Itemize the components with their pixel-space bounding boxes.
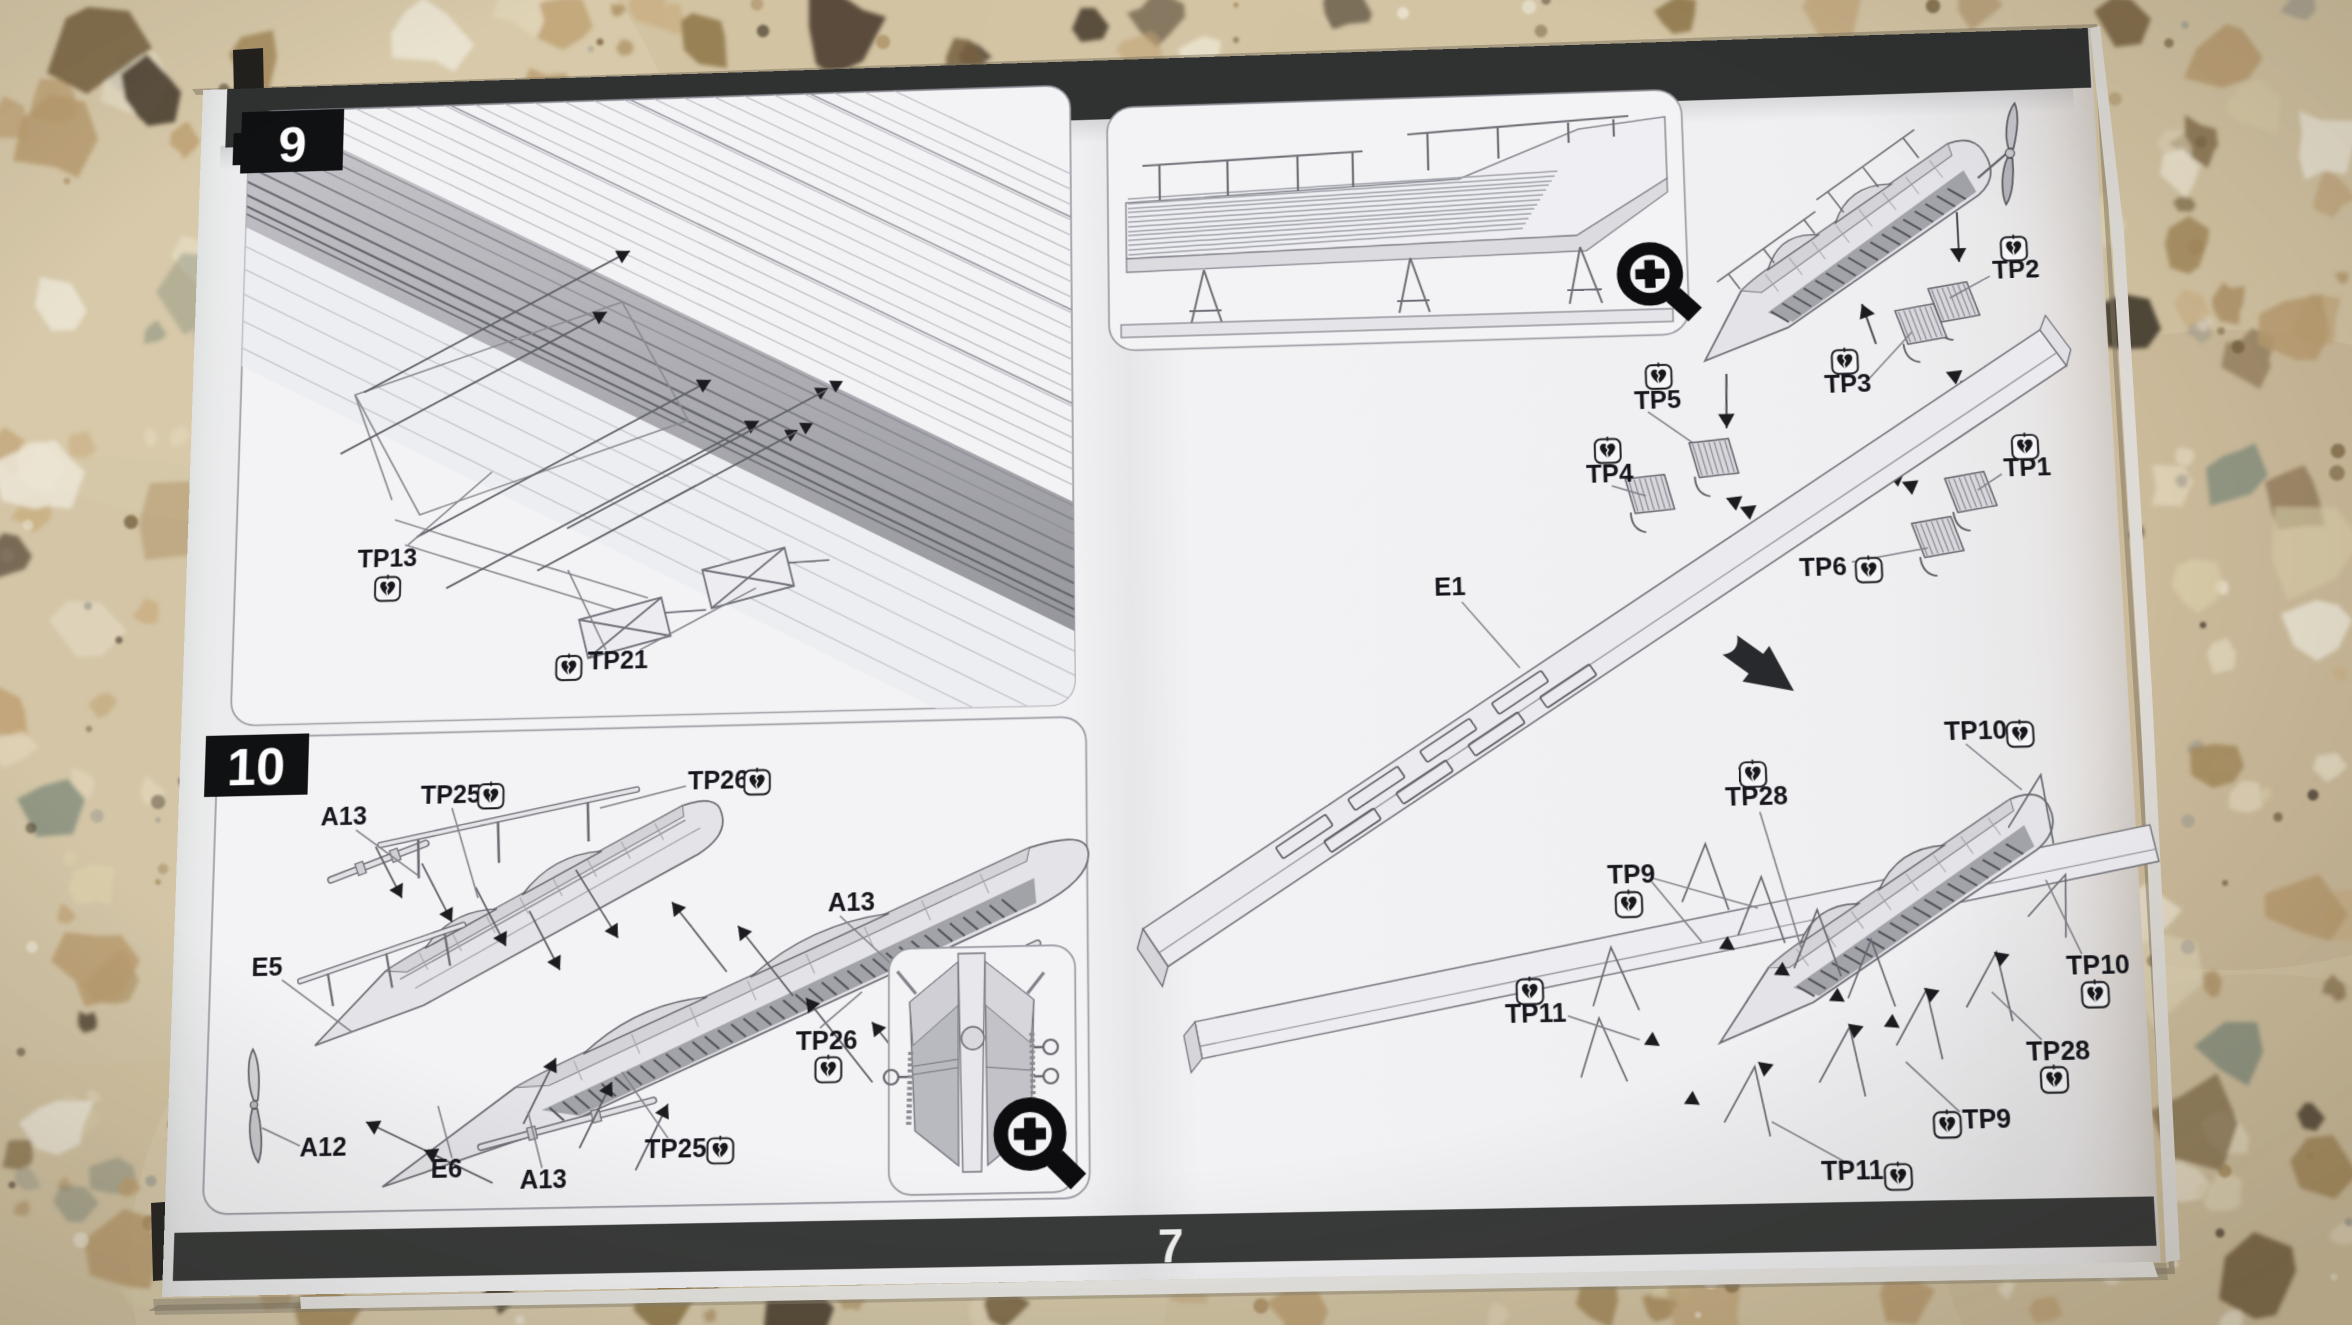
- svg-text:A12: A12: [299, 1132, 347, 1162]
- svg-text:TP4: TP4: [1586, 460, 1635, 489]
- svg-text:TP5: TP5: [1634, 386, 1682, 415]
- svg-text:E5: E5: [251, 953, 283, 983]
- svg-text:A13: A13: [519, 1164, 567, 1195]
- svg-text:TP25: TP25: [420, 780, 481, 810]
- svg-text:E6: E6: [430, 1155, 462, 1185]
- svg-text:TP25: TP25: [645, 1134, 707, 1165]
- svg-text:TP9: TP9: [1962, 1104, 2012, 1135]
- svg-text:A13: A13: [320, 802, 367, 832]
- svg-text:E1: E1: [1434, 573, 1466, 602]
- svg-text:9: 9: [278, 117, 308, 173]
- svg-text:7: 7: [1158, 1220, 1184, 1273]
- svg-text:TP21: TP21: [588, 646, 649, 676]
- svg-text:TP26: TP26: [796, 1026, 858, 1057]
- svg-text:TP28: TP28: [2026, 1036, 2091, 1067]
- svg-text:TP6: TP6: [1799, 553, 1848, 583]
- svg-text:TP26: TP26: [688, 766, 749, 796]
- svg-text:10: 10: [226, 738, 286, 797]
- svg-text:TP10: TP10: [2066, 950, 2131, 981]
- svg-text:A13: A13: [828, 888, 875, 918]
- svg-text:TP9: TP9: [1607, 860, 1656, 890]
- svg-text:TP10: TP10: [1944, 716, 2008, 747]
- svg-text:TP11: TP11: [1821, 1156, 1884, 1187]
- svg-text:TP13: TP13: [357, 544, 417, 574]
